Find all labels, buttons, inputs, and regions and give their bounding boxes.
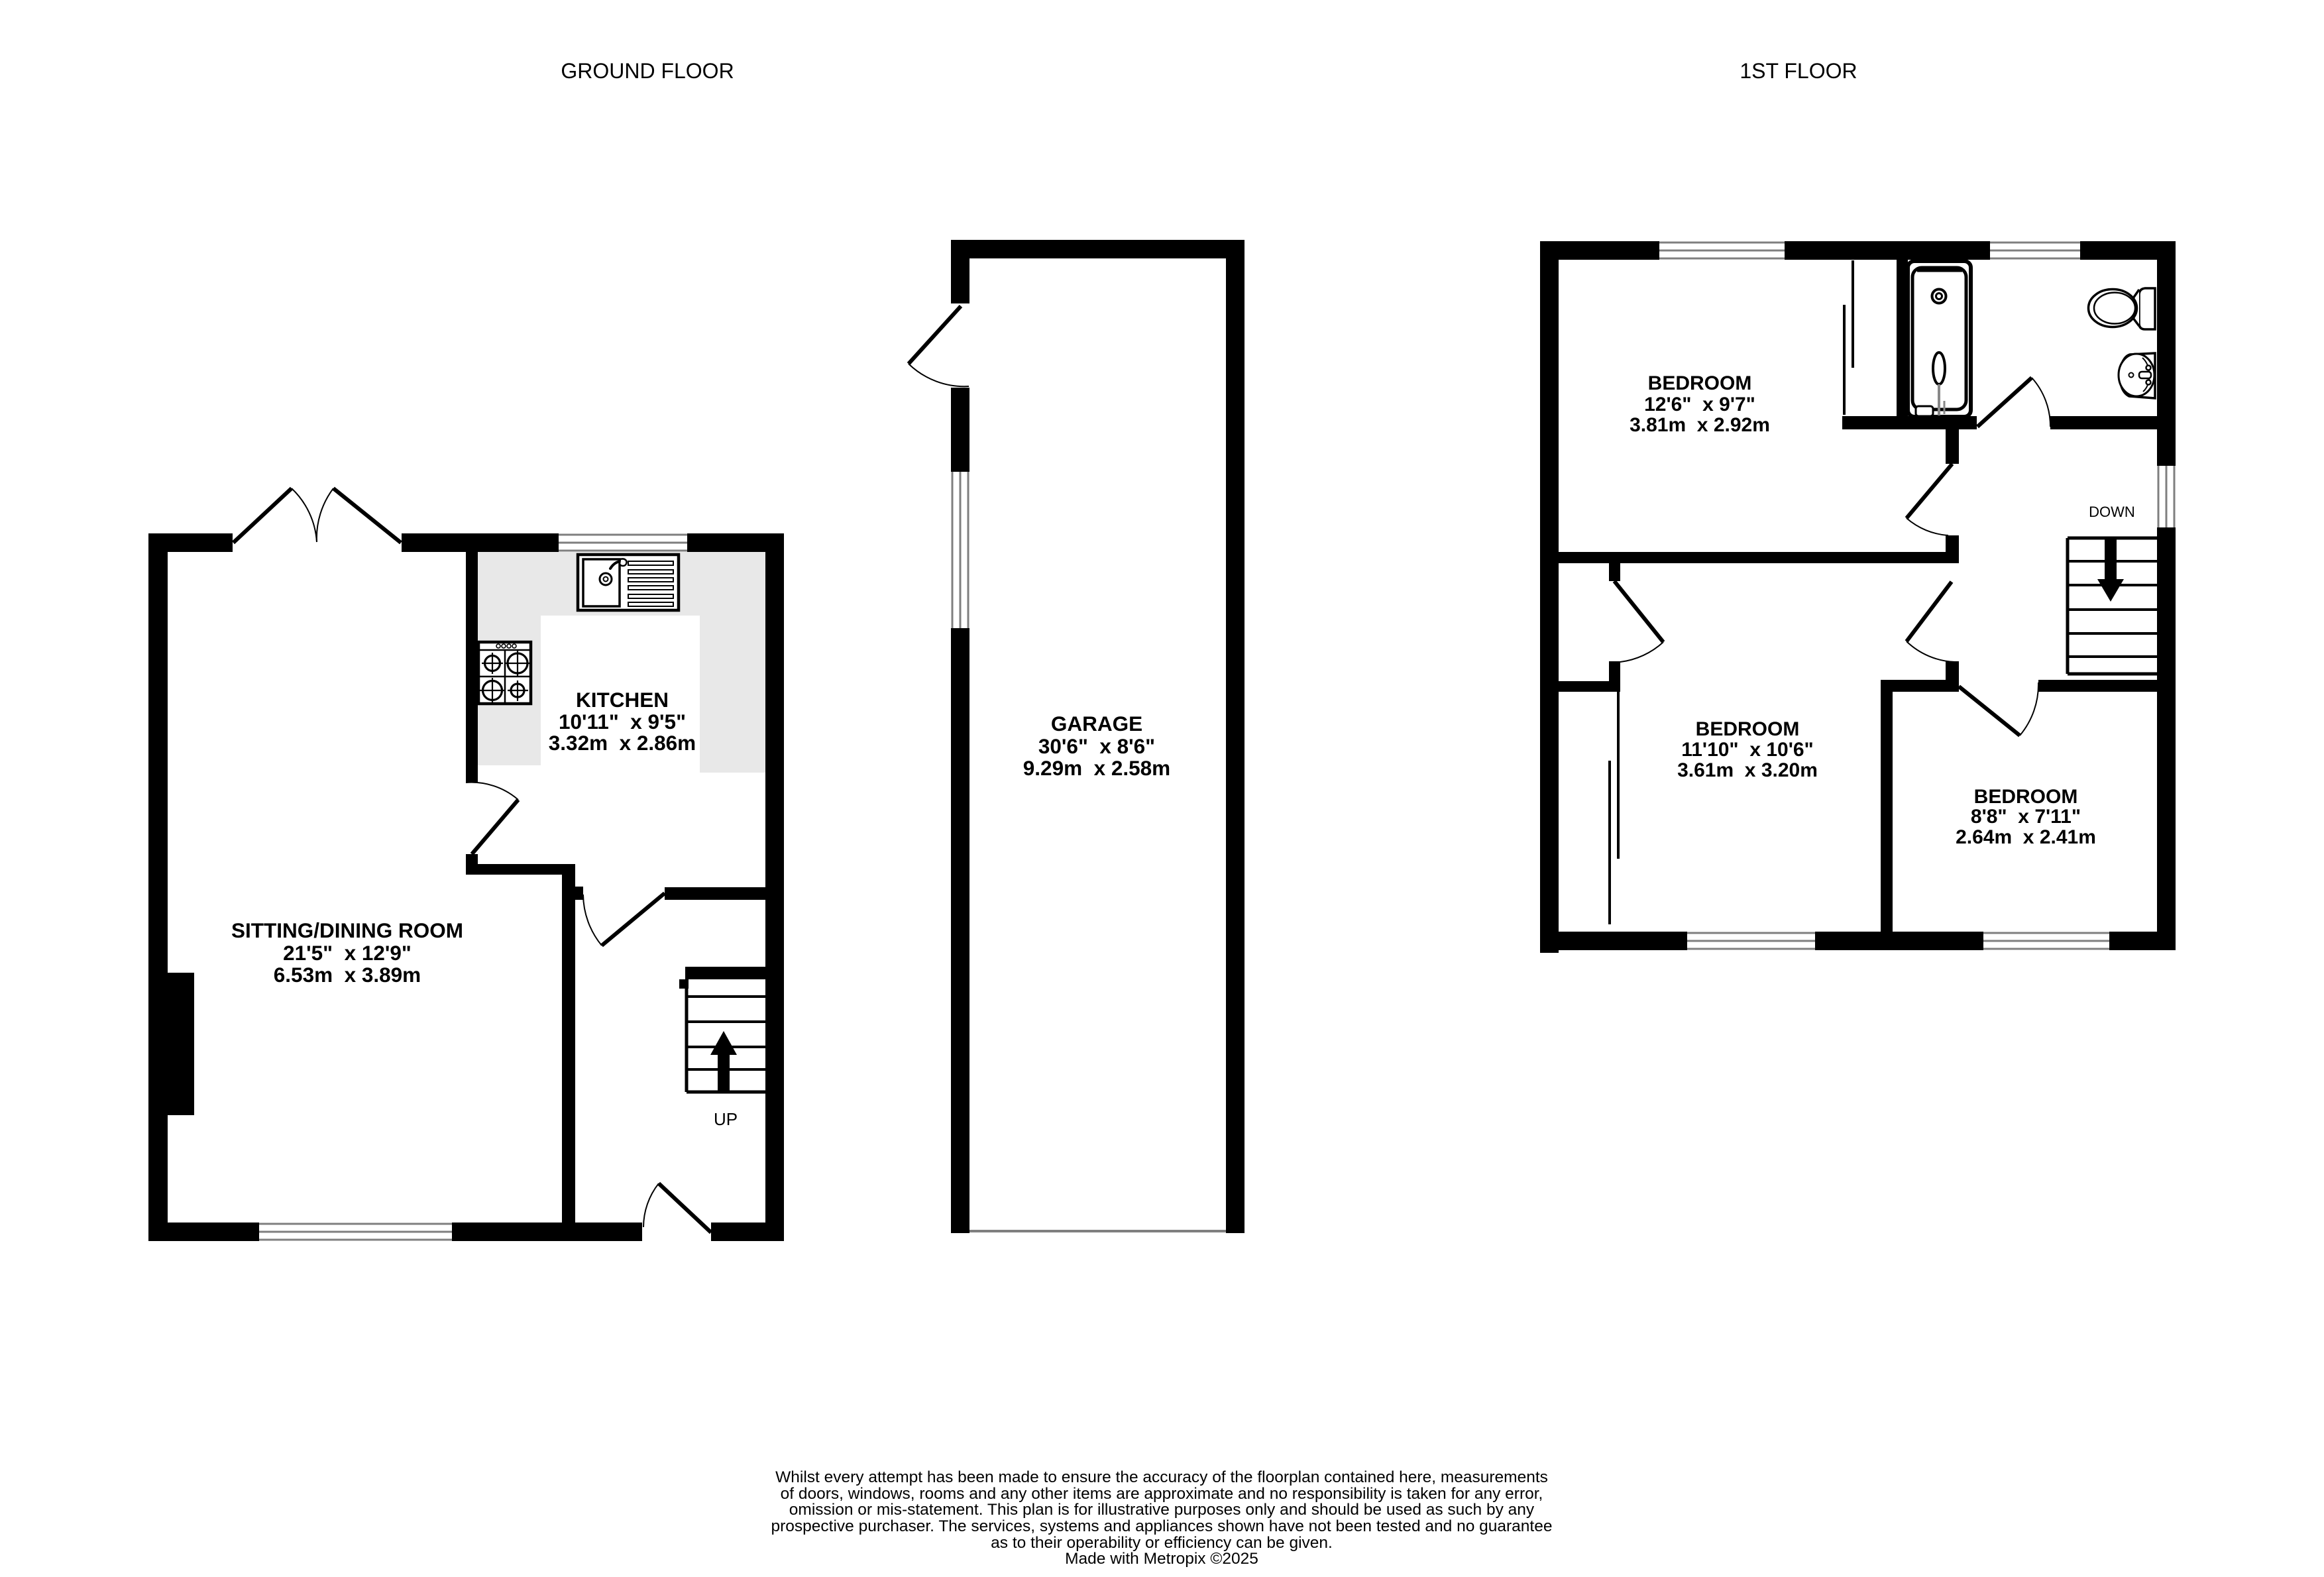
svg-text:21'5" x 12'9": 21'5" x 12'9": [283, 941, 412, 965]
svg-text:10'11" x 9'5": 10'11" x 9'5": [559, 710, 686, 734]
svg-text:BEDROOM: BEDROOM: [1648, 372, 1752, 394]
svg-text:UP: UP: [714, 1109, 738, 1129]
svg-text:3.61m x 3.20m: 3.61m x 3.20m: [1677, 759, 1818, 781]
svg-text:6.53m x 3.89m: 6.53m x 3.89m: [274, 963, 421, 987]
svg-text:DOWN: DOWN: [2089, 504, 2135, 520]
svg-text:30'6" x 8'6": 30'6" x 8'6": [1038, 734, 1155, 758]
svg-text:BEDROOM: BEDROOM: [1696, 718, 1800, 740]
svg-text:GARAGE: GARAGE: [1051, 712, 1142, 735]
svg-text:BEDROOM: BEDROOM: [1974, 786, 2078, 808]
svg-text:11'10" x 10'6": 11'10" x 10'6": [1681, 739, 1814, 761]
svg-text:as to their operability or eff: as to their operability or efficiency ca…: [991, 1534, 1333, 1552]
svg-text:Whilst every attempt has been: Whilst every attempt has been made to en…: [775, 1468, 1548, 1486]
svg-text:GROUND FLOOR: GROUND FLOOR: [561, 59, 734, 83]
svg-text:KITCHEN: KITCHEN: [576, 688, 669, 712]
svg-text:1ST FLOOR: 1ST FLOOR: [1740, 59, 1857, 83]
svg-text:omission or mis-statement. Thi: omission or mis-statement. This plan is …: [789, 1501, 1535, 1519]
svg-text:of doors, windows, rooms and a: of doors, windows, rooms and any other i…: [781, 1485, 1543, 1503]
svg-text:8'8" x 7'11": 8'8" x 7'11": [1971, 806, 2081, 828]
svg-text:SITTING/DINING ROOM: SITTING/DINING ROOM: [231, 918, 463, 942]
svg-text:9.29m x 2.58m: 9.29m x 2.58m: [1023, 756, 1170, 780]
svg-text:3.32m x 2.86m: 3.32m x 2.86m: [549, 731, 696, 755]
svg-text:prospective purchaser. The ser: prospective purchaser. The services, sys…: [771, 1517, 1552, 1535]
svg-text:12'6" x 9'7": 12'6" x 9'7": [1644, 394, 1755, 415]
svg-text:3.81m x 2.92m: 3.81m x 2.92m: [1630, 414, 1770, 436]
svg-text:Made with Metropix ©2025: Made with Metropix ©2025: [1065, 1550, 1258, 1568]
svg-text:2.64m x 2.41m: 2.64m x 2.41m: [1956, 826, 2096, 848]
